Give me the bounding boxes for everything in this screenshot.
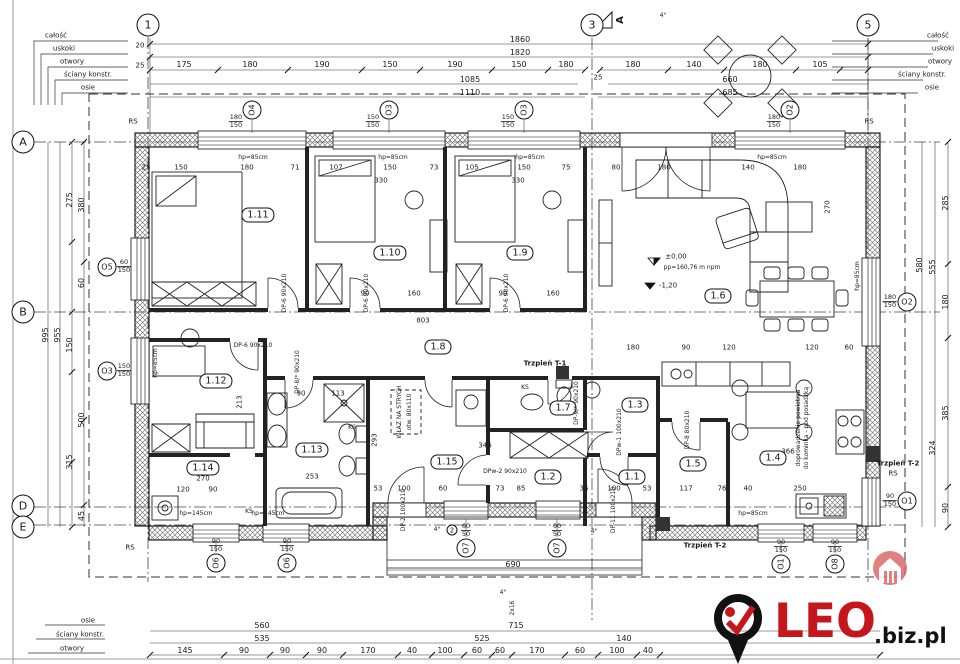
dim-label: 580 [916,257,924,272]
dim-label: 150 [382,61,397,69]
sill-height-label: hp=85cm [238,155,267,161]
window-marker-o7: O7 [548,539,567,558]
rs-marker: RS [128,119,137,126]
dim-label: 25 [594,75,603,82]
room-label-1-10: 1.10 [373,246,406,261]
vent-label-ks: KS [521,385,529,391]
dim-label: 270 [196,476,209,483]
window-marker-o1: O1 [898,492,917,511]
dim-label: 120 [176,487,189,494]
dim-label: 120 [805,345,818,352]
dim-label: 90 [942,503,950,513]
washing-machine-icon [152,496,178,520]
desk-icon [543,191,585,272]
grid-marker-1: 1 [137,14,160,37]
dim-label: 20 [136,43,145,50]
dim-label: 85 [517,486,526,493]
dim-label: 60 [845,345,854,352]
dim-label: 330 [374,178,387,185]
dim-label: 180 [942,294,950,309]
door-label-dp11: DP-11 100x210 [611,487,617,533]
legend-sciany: ściany konstr. [898,72,946,79]
window-marker-o3: O3 [98,362,117,381]
window-size: 180150 [229,114,243,130]
dim-label: 180 [625,61,640,69]
dim-label: 60 [439,486,448,493]
sill-height-label: hp=85cm [515,155,544,161]
dim-label: 346 [478,443,491,450]
dim-label: 90 [280,647,290,655]
dim-label: 330 [511,178,524,185]
dim-label: 190 [314,61,329,69]
dim-label: 35 [580,486,589,493]
slope-label: 4° [500,590,507,596]
legend-osie: osie [81,85,95,92]
room-label-1-9: 1.9 [506,246,533,261]
dim-label: 90 [209,487,218,494]
kitchen-sink-icon [796,494,846,518]
dim-label: 180 [626,345,639,352]
room-label-1-8: 1.8 [424,340,451,355]
dim-label: 53 [374,486,383,493]
door-label-dp8s: DP-8/* 90x210 [295,350,301,394]
dim-label: 40 [643,647,653,655]
door-label-dp9: DP-9/* 90x210 [574,381,580,425]
dim-label: 190 [447,61,462,69]
dim-label: 660 [722,76,737,84]
dim-label: 107 [329,165,342,172]
window-marker-o1: O1 [772,555,791,574]
dim-label: 535 [254,635,269,643]
dim-label: 995 [42,327,50,342]
window-marker-o3: O3 [515,101,534,120]
dim-label: 180 [752,61,767,69]
armchair-icon [715,207,759,250]
level-zero-label: ±0,00 [665,254,686,261]
bathroom-sink-icon [267,393,287,447]
dim-label: 180 [793,165,806,172]
sill-height-label: hp=85cm [855,261,861,290]
dim-label: 140 [741,165,754,172]
dim-label: 180 [657,165,670,172]
slope-label: 4° [591,529,598,535]
door-label-dp2: DP-2 100x210 [401,489,407,531]
stairs-label: 2x16 [510,600,516,615]
logo-suffix-text[interactable]: .biz.pl [874,626,947,647]
dim-label: 80 [612,165,621,172]
dim-label: 150 [511,61,526,69]
legend-uskoki: uskoki [932,46,954,53]
legend-osie: osie [81,618,95,625]
dim-label: 40 [407,647,417,655]
rs-marker: RS [864,119,873,126]
dim-label: 250 [793,486,806,493]
bed-icon [152,172,242,298]
dim-label: 315 [66,454,74,469]
dim-label: 555 [929,259,937,274]
dim-label: 60 [472,647,482,655]
legend-uskoki: uskoki [53,46,75,53]
dim-label: 120 [722,345,735,352]
grid-marker-5: 5 [857,14,880,37]
dim-label: 113 [331,391,344,398]
dim-label: 275 [66,192,74,207]
dim-label: 1110 [460,89,480,97]
kitchen-note: doprowadzenie powietrza [796,390,802,467]
vent-label-ks: KS [245,509,253,515]
dim-label: 175 [176,61,191,69]
dim-label: 90 [317,647,327,655]
dim-label: 90 [682,345,691,352]
dim-label: 140 [616,635,631,643]
dining-table-icon [746,267,848,331]
dim-label: 525 [474,635,489,643]
toilet-icon [339,424,368,476]
dim-label: 293 [372,433,379,446]
window-size: 6050 [461,523,471,539]
dim-label: 690 [505,561,520,569]
room-label-1-12: 1.12 [199,374,232,389]
window-marker-o6: O6 [207,554,226,573]
window-size: 150150 [117,363,131,379]
utility-counter-icon [456,390,486,426]
bed-icon [455,156,515,242]
legend-otwory: otwory [60,646,84,653]
section-label: A [616,16,626,24]
dim-label: 803 [416,318,429,325]
window-symbols [131,131,880,542]
window-size: 180150 [883,294,897,310]
dim-label: 105 [812,61,827,69]
window-marker-o8: O8 [826,555,845,574]
vent-label-ks: KS [348,425,356,431]
dim-label: 53 [643,486,652,493]
slope-label: 4° [660,13,667,19]
sill-height-label: hp=85cm [738,511,767,517]
grid-marker-d: D [12,495,35,518]
dim-label: 60 [78,278,86,288]
legend-sciany: ściany konstr. [64,72,112,79]
window-marker-o3: O3 [380,101,399,120]
grid-marker-b: B [12,301,35,324]
dim-label: 560 [254,622,269,630]
window-marker-o5: O5 [98,258,117,277]
dim-label: 75 [562,165,571,172]
window-size: 150150 [366,114,380,130]
dim-label: 150 [517,165,530,172]
sill-height-label: hp=145cm [179,511,212,517]
step-marker: 2 [447,525,458,536]
dim-label: 90 [239,647,249,655]
room-label-1-14: 1.14 [186,461,219,476]
legend-calosc: całość [927,33,949,40]
window-size: 150150 [501,114,515,130]
dim-label: 60 [575,647,585,655]
legend-otwory: otwory [928,59,952,66]
column-label-t2: Trzpień T-2 [877,461,920,468]
window-size: 90150 [828,539,842,555]
dim-label: 45 [78,511,86,521]
attic-hatch-label: otw. 80x110 [407,394,413,431]
dim-label: 500 [78,412,86,427]
grid-marker-e: E [12,516,35,539]
slope-label: 4° [434,527,441,533]
dim-label: 25 [142,165,151,172]
grid-marker-3: 3 [581,14,604,37]
sill-height-label: hp=145cm [251,511,284,517]
tv-bench-icon [599,200,612,286]
window-glazing-lines [137,137,876,538]
room-label-1-5: 1.5 [679,457,706,472]
window-size: 6050 [552,523,562,539]
window-marker-o2: O2 [781,101,800,120]
stove-icon [836,410,864,454]
door-label-dp6: DP-6 90x210 [234,343,273,349]
dim-label: 180 [242,61,257,69]
dim-label: 160 [546,291,559,298]
room-label-1-2: 1.2 [534,470,561,485]
window-size: 90150 [280,538,294,554]
window-marker-o7: O7 [457,539,476,558]
dim-label: 213 [237,395,244,408]
dim-label: 715 [508,622,523,630]
logo-magnifier-icon[interactable] [718,598,758,664]
bathtub-icon [276,488,342,518]
watermark-house-icon [873,551,907,585]
dim-label: 170 [529,647,544,655]
rs-marker: RS [125,545,134,552]
attic-hatch-label: WŁAZ NA STRYCH [397,385,403,438]
legend-osie: osie [925,85,939,92]
window-size: 60150 [117,259,131,275]
column-label-t1: Trzpień T-1 [524,361,567,368]
legend-otwory: otwory [60,59,84,66]
door-label-dp6: DP-6 90x210 [282,274,288,313]
dim-label: 180 [558,61,573,69]
window-marker-o6: O6 [278,554,297,573]
dim-label: 324 [929,440,937,455]
room-label-1-1: 1.1 [618,470,645,485]
dim-label: 73 [496,486,505,493]
kitchen-counter-icon [662,362,790,386]
legend-calosc: całość [45,33,67,40]
dim-label: 25 [136,63,145,70]
dim-label: 100 [437,647,452,655]
dim-label: 100 [609,647,624,655]
bed-icon [315,156,375,242]
exterior-walls [135,133,880,540]
dim-label: 76 [718,486,727,493]
room-label-1-3: 1.3 [621,398,648,413]
dim-label: 145 [177,647,192,655]
dim-label: 955 [54,327,62,342]
dim-label: 1085 [460,76,480,84]
level-minus-label: -1,20 [659,283,677,290]
room-label-1-6: 1.6 [704,289,731,304]
level-marker [645,258,660,289]
legend-sciany: ściany konstr. [56,632,104,639]
dim-label: 40 [744,486,753,493]
dim-label: 140 [686,61,701,69]
dim-label: 105 [465,165,478,172]
door-label-dp6: DP-6 90x210 [504,274,510,313]
room-label-1-15: 1.15 [430,455,463,470]
door-label-dp8: DP-8 80x210 [685,411,691,450]
dim-label: 1820 [510,49,530,57]
dim-label: 285 [942,195,950,210]
dim-label: 150 [174,165,187,172]
desk-icon [405,191,447,272]
dim-label: 385 [942,405,950,420]
window-size: 90150 [774,539,788,555]
dim-label: 253 [305,474,318,481]
dim-label: 73 [430,165,439,172]
sill-height-label: hp=85cm [378,155,407,161]
dim-label: 170 [360,647,375,655]
kitchen-note: do kominka - pod posadzką [804,387,810,469]
room-label-1-11: 1.11 [241,208,274,223]
grid-marker-a: A [12,131,35,154]
rs-marker: RS [888,471,897,478]
door-label-dpw2: DPw-2 90x210 [483,469,527,475]
room-label-1-13: 1.13 [295,443,328,458]
window-marker-o2: O2 [898,293,917,312]
sill-height-label: hp=85cm [757,155,786,161]
window-size: 90150 [209,538,223,554]
level-pp-label: pp=160,76 m npm [664,265,721,271]
window-size: 90150 [883,493,897,509]
window-marker-o4: O4 [243,101,262,120]
dim-label: 150 [66,337,74,352]
window-size: 180150 [767,114,781,130]
room-label-1-4: 1.4 [759,451,786,466]
dim-label: 685 [722,89,737,97]
floor-plan: 1 3 5 A B D E A całość uskoki otwory ści… [0,0,960,664]
dim-label: 117 [679,486,692,493]
coffee-table-icon [766,202,812,232]
desk-icon [153,329,205,376]
dim-label: 71 [291,165,300,172]
dim-label: 60 [495,647,505,655]
sill-height-label: hp=85cm [153,348,159,377]
dim-label: 270 [825,200,832,213]
column-label-t2: Trzpień T-2 [684,543,727,550]
door-label-dp6: DP-6 90x210 [364,274,370,313]
dim-label: 380 [78,197,86,212]
dim-label: 180 [240,165,253,172]
dim-label: 160 [407,291,420,298]
dim-label: 1860 [510,36,530,44]
dim-label: 150 [383,165,396,172]
logo-brand-text[interactable]: LEO [774,598,876,645]
door-label-dpw1: DPw-1 100x210 [617,408,623,456]
floorplan-drawing [0,0,960,664]
